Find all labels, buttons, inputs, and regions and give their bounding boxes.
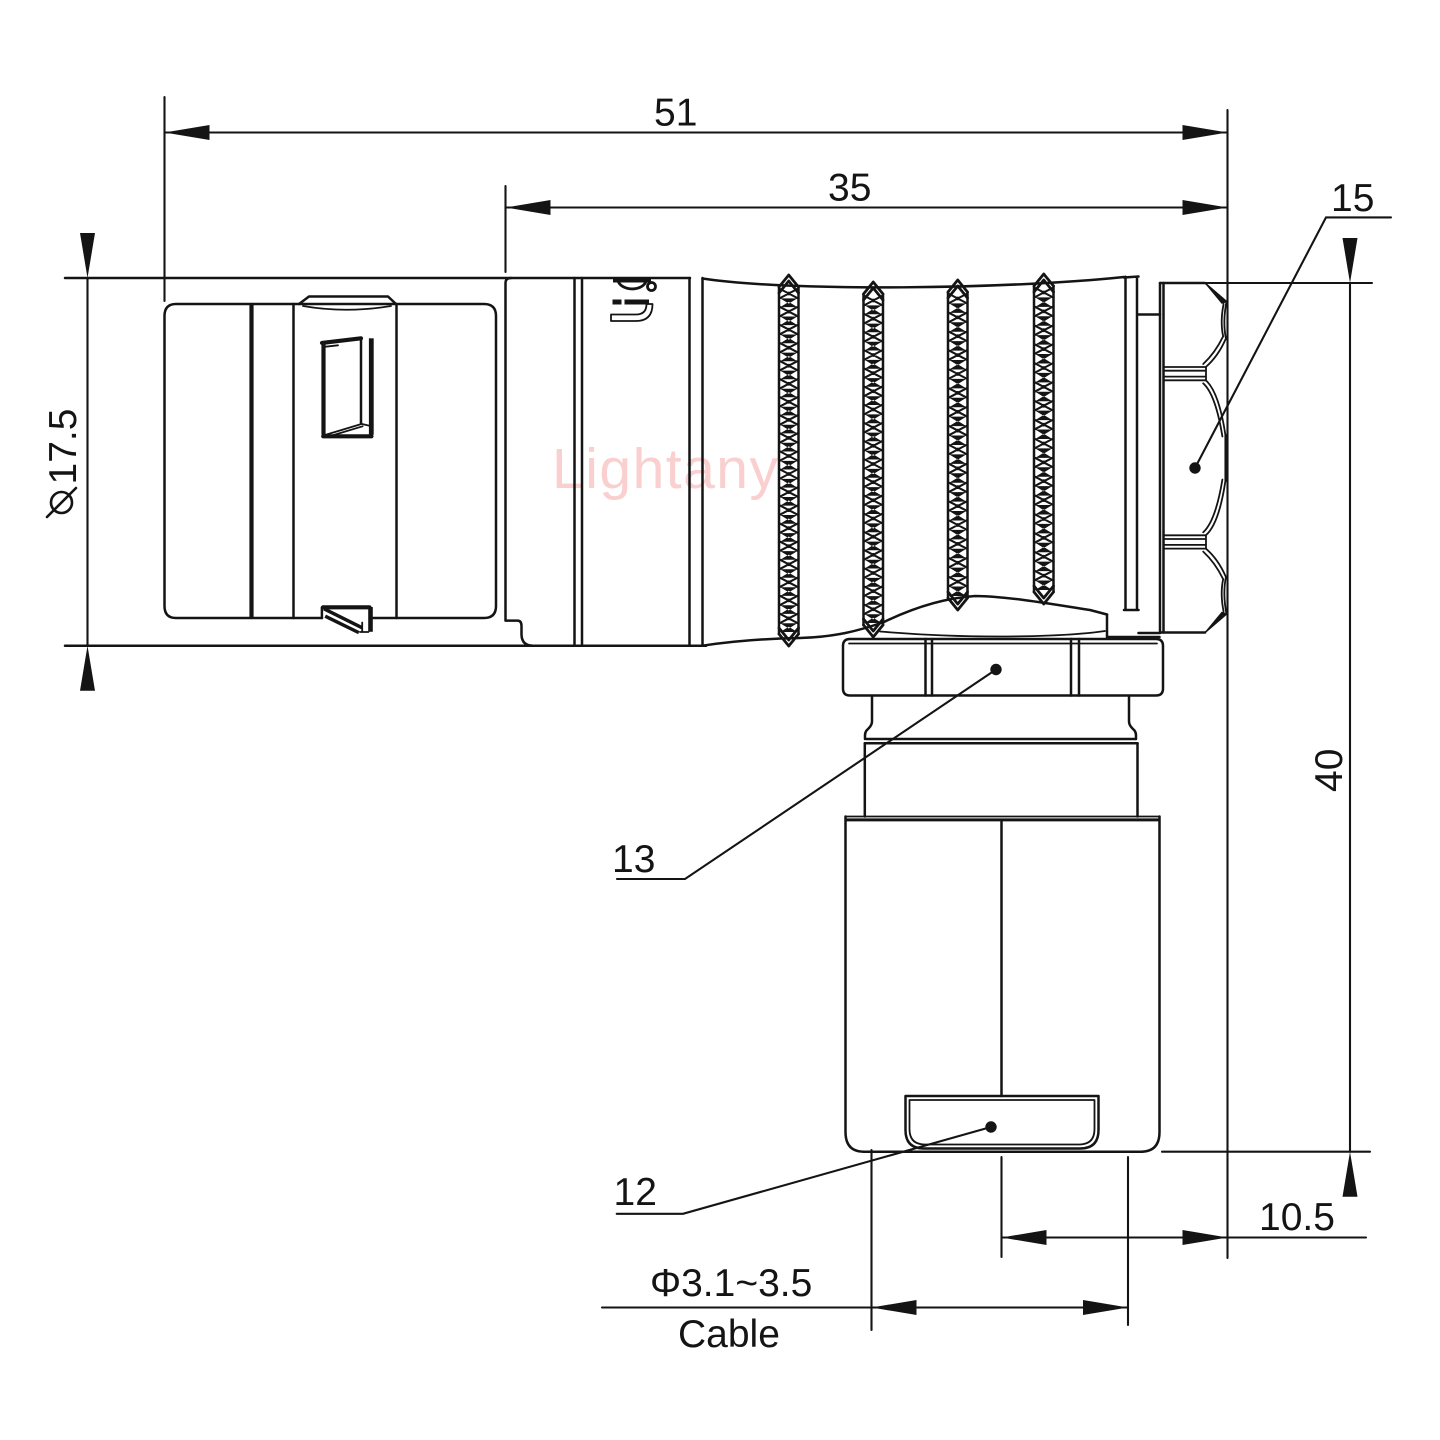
svg-text:15: 15 [1331, 177, 1374, 220]
svg-text:10.5: 10.5 [1259, 1196, 1335, 1239]
svg-text:12: 12 [614, 1171, 657, 1214]
svg-text:Cable: Cable [678, 1313, 780, 1356]
svg-text:51: 51 [654, 92, 697, 135]
svg-text:Φ3.1~3.5: Φ3.1~3.5 [650, 1262, 812, 1305]
svg-text:17.5: 17.5 [42, 409, 85, 485]
svg-text:40: 40 [1308, 749, 1351, 792]
svg-text:Lightany: Lightany [552, 437, 780, 501]
svg-text:13: 13 [612, 838, 655, 881]
svg-text:35: 35 [828, 167, 871, 210]
